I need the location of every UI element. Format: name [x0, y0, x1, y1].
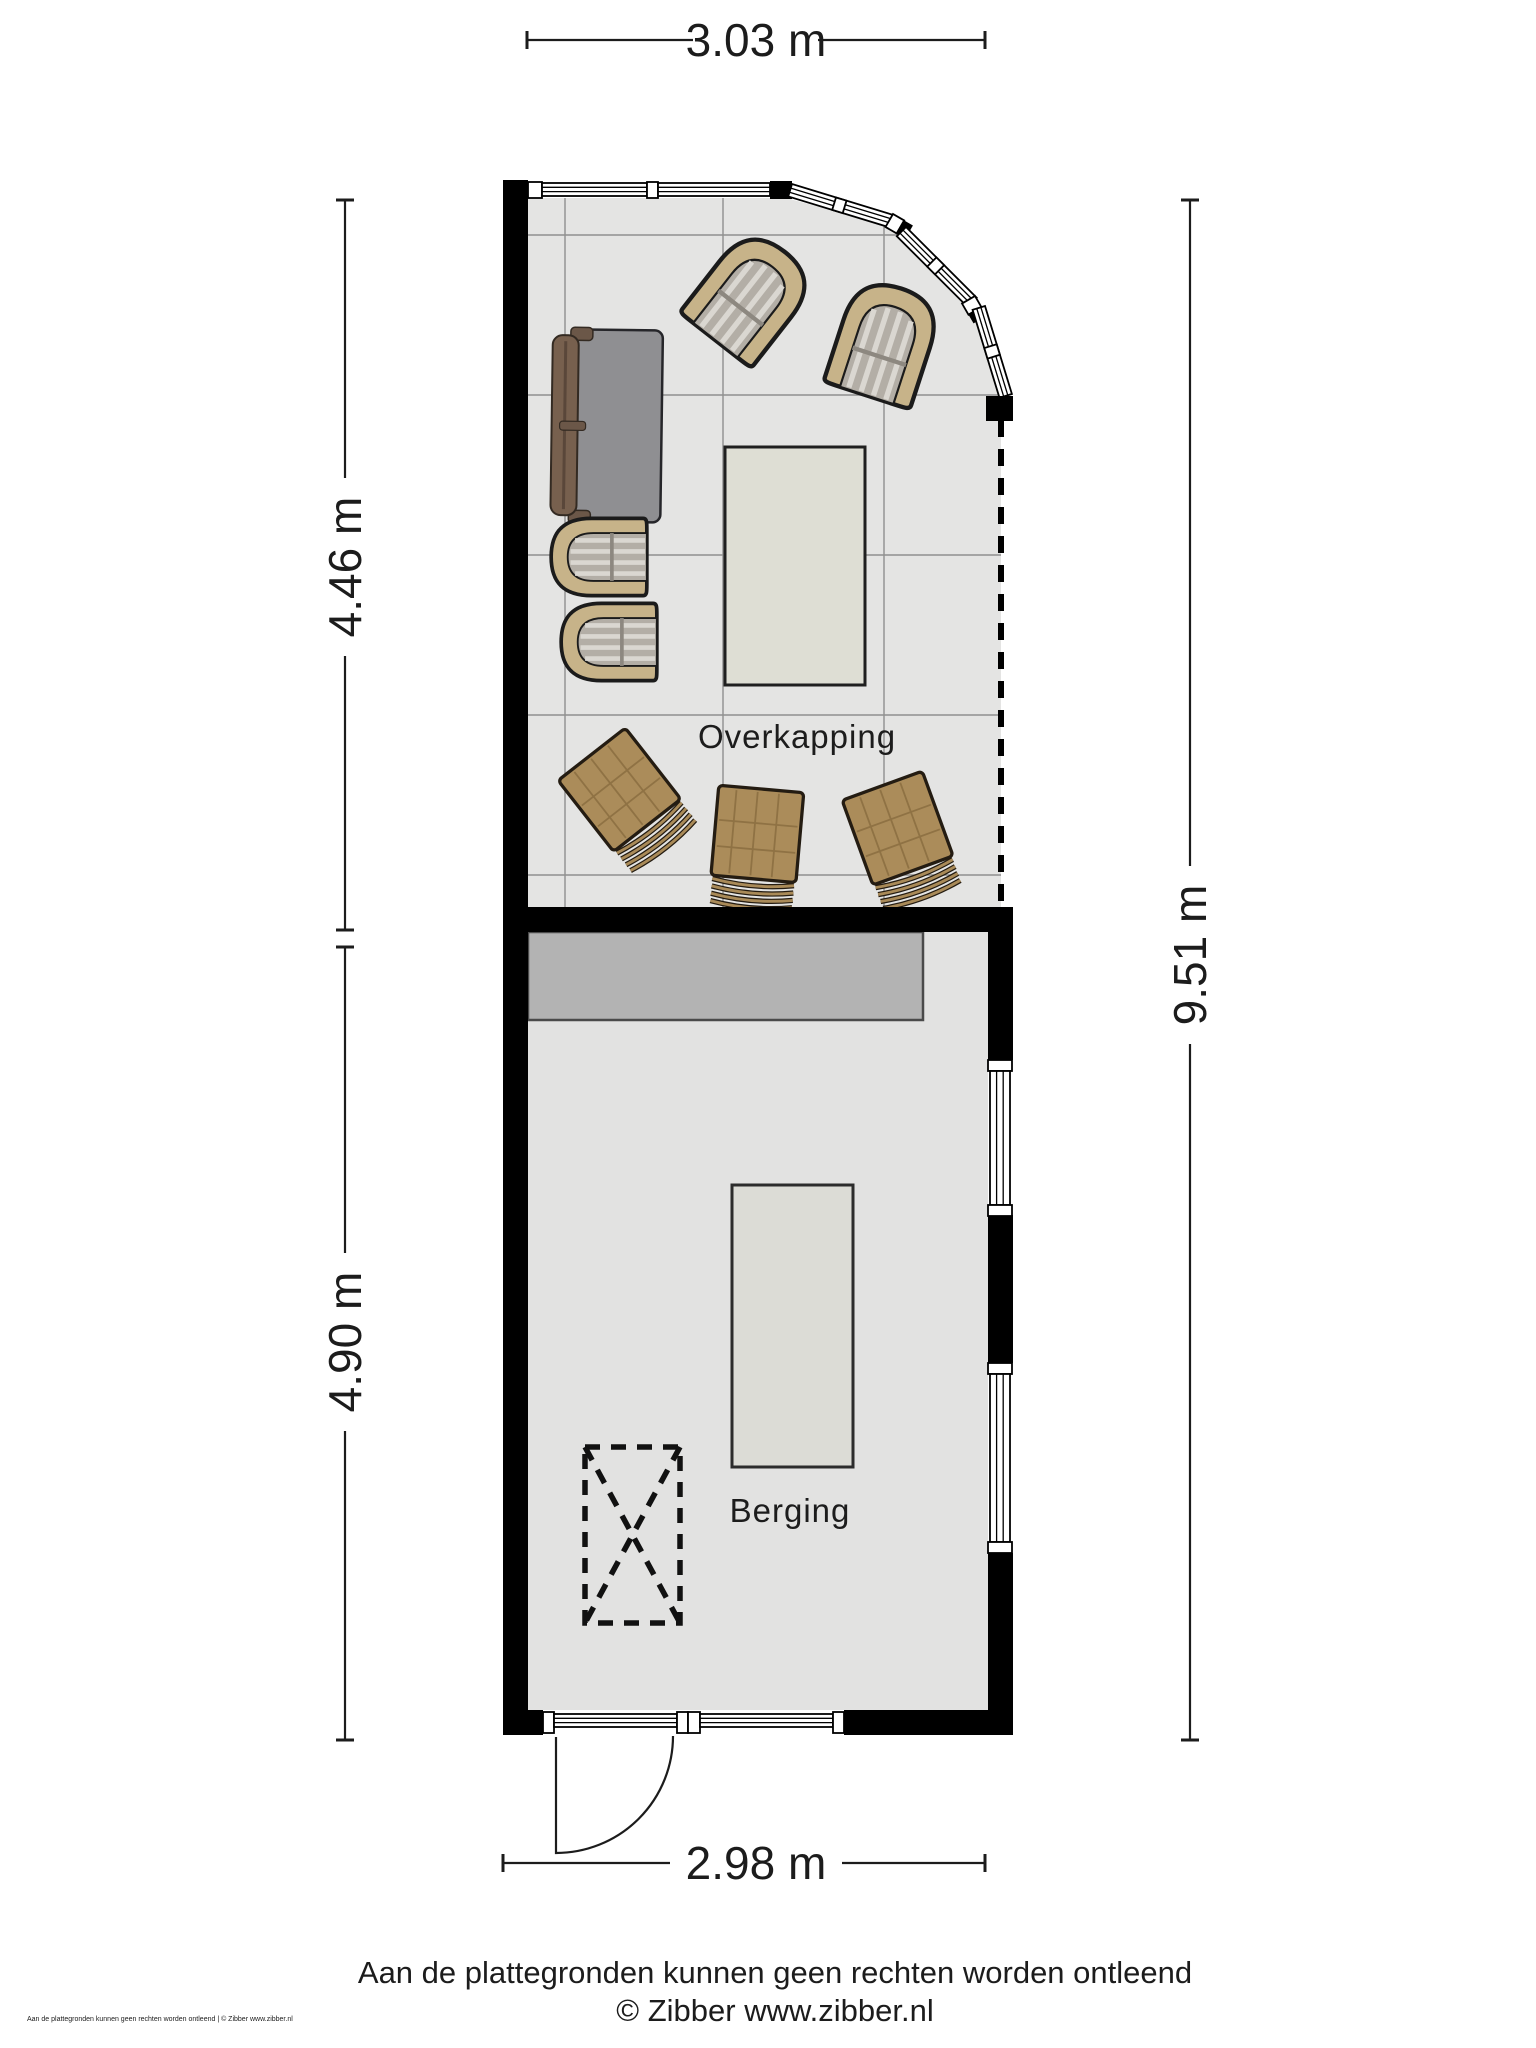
wall-right-mid [988, 1215, 1013, 1363]
glazed-door [543, 1712, 688, 1733]
glazing-top-run [528, 181, 792, 199]
dimension-top-label: 3.03 m [686, 14, 827, 66]
storage-table [732, 1185, 853, 1467]
wicker-chair [551, 518, 647, 595]
dimension-right: 9.51 m [1164, 200, 1216, 1740]
window-bottom [688, 1712, 844, 1733]
storage-workbench [528, 932, 923, 1020]
corner-end-post [986, 396, 1013, 421]
footer-credit: © Zibber www.zibber.nl [616, 1993, 933, 2028]
floorplan-page: Overkapping Berging 3.03 m 4.46 m 4.90 m… [0, 0, 1536, 2048]
dimension-top: 3.03 m [527, 14, 985, 66]
dimension-left-upper: 4.46 m [319, 200, 371, 930]
corner-note: Aan de plattegronden kunnen geen rechten… [27, 2015, 293, 2023]
dimension-left-upper-label: 4.46 m [319, 497, 371, 638]
wall-right-upper [988, 907, 1013, 1060]
window-right-upper [988, 1060, 1012, 1216]
dimension-bottom-label: 2.98 m [686, 1837, 827, 1889]
wall-bottom-left [503, 1710, 543, 1735]
wall-right-lower [988, 1553, 1013, 1710]
dimension-bottom: 2.98 m [503, 1837, 985, 1889]
wall-left [503, 180, 528, 1735]
door-swing [556, 1736, 673, 1853]
wall-middle [503, 907, 1013, 932]
room-label-berging: Berging [730, 1492, 851, 1529]
room-label-overkapping: Overkapping [698, 718, 896, 755]
floorplan-drawing: Overkapping Berging 3.03 m 4.46 m 4.90 m… [0, 0, 1536, 2048]
dimension-left-lower: 4.90 m [319, 947, 371, 1740]
window-right-lower [988, 1363, 1012, 1553]
wicker-chair [561, 603, 657, 680]
footer-disclaimer: Aan de plattegronden kunnen geen rechten… [358, 1955, 1192, 1990]
lounge-table [725, 447, 865, 685]
wall-bottom-right [844, 1710, 1013, 1735]
dimension-left-lower-label: 4.90 m [319, 1272, 371, 1413]
garden-sofa [550, 327, 663, 525]
dimension-right-label: 9.51 m [1164, 885, 1216, 1026]
